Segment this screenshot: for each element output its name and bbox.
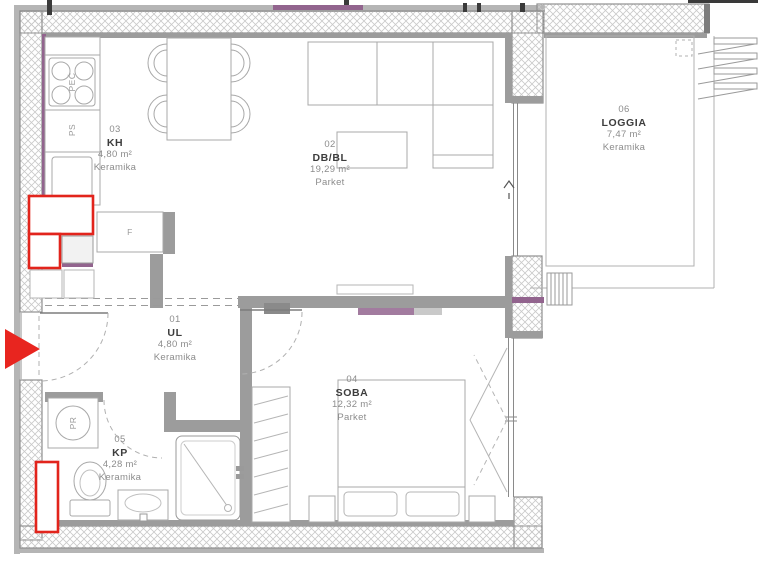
room-area: 19,29 m² [310, 164, 350, 177]
nightstand [469, 496, 495, 522]
room-number: 03 [94, 124, 137, 137]
entrance-arrow-icon [5, 329, 40, 369]
room-name: DB/BL [310, 152, 350, 165]
washer-label: PR [68, 417, 78, 430]
room-area: 12,32 m² [332, 399, 372, 412]
room-name: SOBA [332, 387, 372, 400]
sink [52, 157, 92, 199]
room-number: 01 [154, 314, 197, 327]
shower [176, 436, 244, 520]
fridge-label: F [127, 227, 133, 237]
drain-mark [676, 40, 692, 56]
dishwasher-label: PS [67, 124, 77, 136]
room-area: 7,47 m² [601, 129, 646, 142]
dining-set [148, 38, 250, 140]
nightstand [309, 496, 335, 522]
sunshade [698, 38, 757, 99]
floor-plan: 03 KH 4,80 m² Keramika 02 DB/BL 19,29 m²… [0, 0, 758, 564]
bathroom-sink [118, 490, 168, 521]
ac-unit [547, 273, 572, 305]
room-floor: Parket [310, 177, 350, 190]
room-label-kp: 05 KP 4,28 m² Keramika [99, 434, 142, 484]
room-number: 04 [332, 374, 372, 387]
room-number: 02 [310, 139, 350, 152]
slide-direction-icon [504, 181, 514, 188]
loggia [530, 36, 757, 305]
room-floor: Keramika [94, 162, 137, 175]
room-name: LOGGIA [601, 117, 646, 130]
room-floor: Parket [332, 412, 372, 425]
room-label-ul: 01 UL 4,80 m² Keramika [154, 314, 197, 364]
room-name: KP [99, 447, 142, 460]
room-floor: Keramika [154, 352, 197, 365]
room-number: 05 [99, 434, 142, 447]
bedroom-furniture [252, 380, 495, 522]
room-label-kh: 03 KH 4,80 m² Keramika [94, 124, 137, 174]
wardrobe [252, 387, 290, 522]
room-label-soba: 04 SOBA 12,32 m² Parket [332, 374, 372, 424]
room-floor: Keramika [99, 472, 142, 485]
room-label-dbbl: 02 DB/BL 19,29 m² Parket [310, 139, 350, 189]
room-floor: Keramika [601, 142, 646, 155]
bathroom-shaft-highlight [36, 462, 58, 532]
room-area: 4,28 m² [99, 459, 142, 472]
stove-label: PEĆ [67, 73, 77, 92]
room-name: KH [94, 137, 137, 150]
room-area: 4,80 m² [154, 339, 197, 352]
room-name: UL [154, 327, 197, 340]
sideboard [337, 285, 413, 294]
room-label-loggia: 06 LOGGIA 7,47 m² Keramika [601, 104, 646, 154]
room-area: 4,80 m² [94, 149, 137, 162]
room-number: 06 [601, 104, 646, 117]
